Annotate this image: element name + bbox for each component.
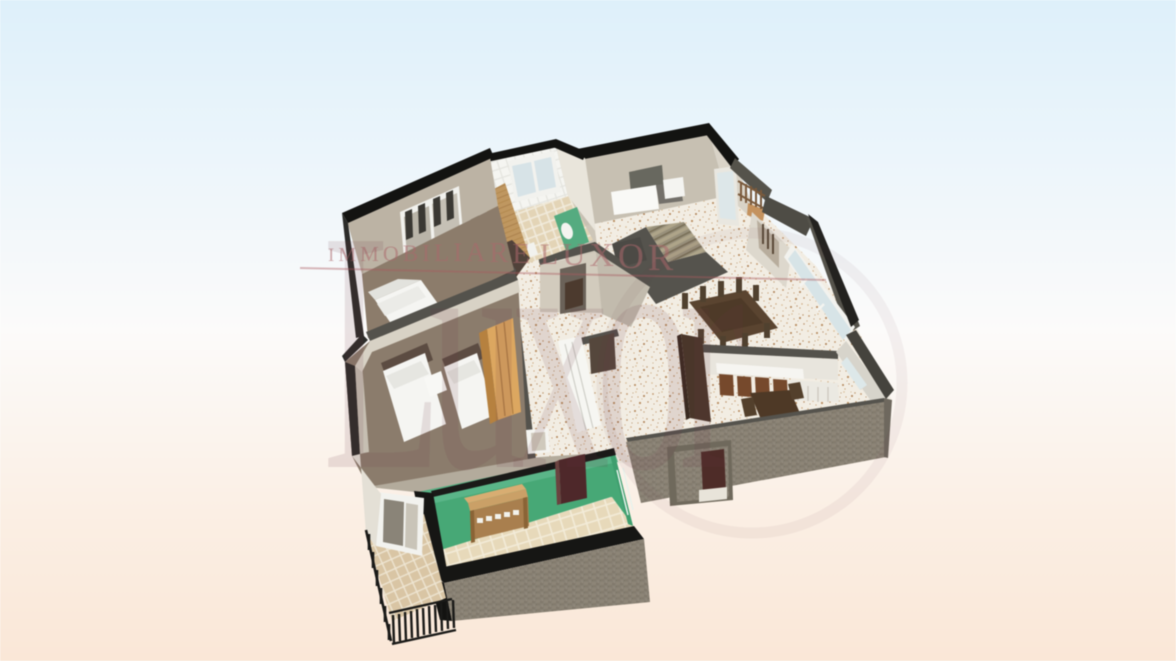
svg-text:Luxor: Luxor xyxy=(323,160,745,542)
